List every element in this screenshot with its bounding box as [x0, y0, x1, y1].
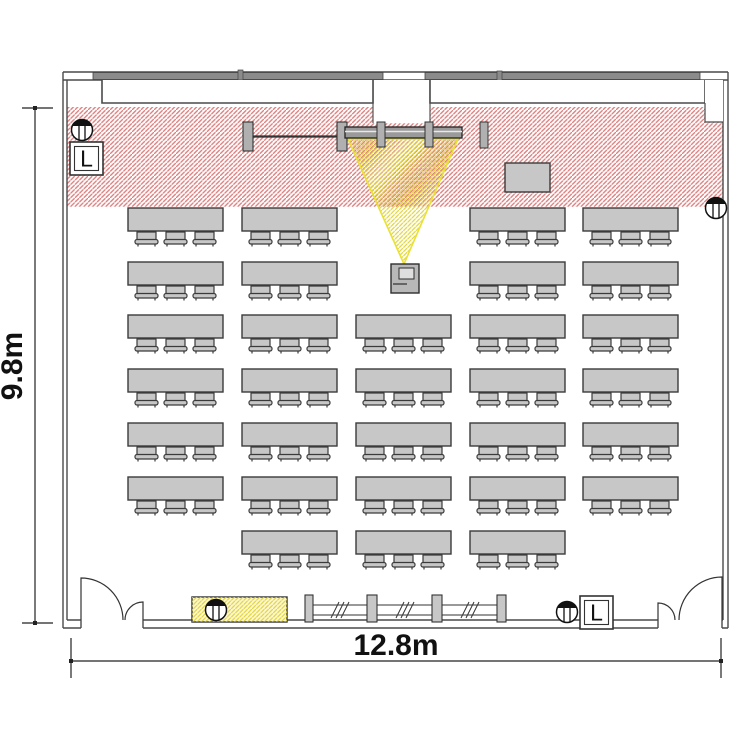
chair — [307, 232, 330, 247]
projector — [391, 264, 419, 293]
chair — [193, 232, 216, 247]
table-group — [128, 315, 223, 354]
chair — [193, 393, 216, 408]
chair — [506, 339, 529, 354]
chair — [278, 339, 301, 354]
table-group — [128, 369, 223, 408]
screen-bar — [345, 127, 462, 138]
switch-label: L — [590, 600, 603, 626]
table — [242, 423, 337, 446]
table — [128, 315, 223, 338]
table-group — [470, 423, 565, 462]
glass-marks — [331, 602, 479, 618]
left-wall — [63, 72, 67, 628]
switch-panel: L — [70, 142, 103, 175]
chair — [535, 555, 558, 570]
chair — [249, 232, 272, 247]
table — [470, 477, 565, 500]
chair — [477, 447, 500, 462]
chair — [506, 286, 529, 301]
chair — [392, 339, 415, 354]
chair — [506, 232, 529, 247]
table-group — [583, 369, 678, 408]
chair — [421, 447, 444, 462]
table-group — [470, 531, 565, 570]
table-group — [242, 477, 337, 516]
table-group — [128, 423, 223, 462]
chair — [477, 555, 500, 570]
table — [242, 531, 337, 554]
chair — [648, 232, 671, 247]
table-group — [356, 369, 451, 408]
table — [470, 423, 565, 446]
door-right — [658, 577, 722, 620]
table-group — [470, 315, 565, 354]
chair — [590, 447, 613, 462]
chair — [535, 501, 558, 516]
chair — [535, 393, 558, 408]
chair — [506, 555, 529, 570]
table-group — [356, 477, 451, 516]
chair — [164, 339, 187, 354]
chair — [249, 447, 272, 462]
table — [128, 477, 223, 500]
chair — [590, 232, 613, 247]
chair — [648, 501, 671, 516]
dimension-width: 12.8m — [69, 629, 723, 678]
chair — [363, 555, 386, 570]
table-group — [583, 262, 678, 301]
right-wall — [723, 72, 728, 628]
table-group — [128, 262, 223, 301]
table-group — [470, 208, 565, 247]
chair — [307, 555, 330, 570]
table — [128, 208, 223, 231]
chair — [506, 393, 529, 408]
chair — [535, 286, 558, 301]
chair — [164, 447, 187, 462]
table — [583, 423, 678, 446]
table-group — [128, 477, 223, 516]
chair — [590, 339, 613, 354]
table — [470, 369, 565, 392]
chair — [193, 501, 216, 516]
chair — [249, 501, 272, 516]
table — [356, 423, 451, 446]
table-group — [242, 315, 337, 354]
table — [470, 208, 565, 231]
switch-label: L — [80, 146, 93, 172]
table — [583, 208, 678, 231]
table — [583, 369, 678, 392]
chair — [535, 232, 558, 247]
table-group — [470, 262, 565, 301]
table — [470, 531, 565, 554]
chair — [648, 286, 671, 301]
chair — [363, 501, 386, 516]
dimension-height: 9.8m — [0, 106, 53, 625]
switch-panel: L — [580, 596, 613, 629]
chair — [363, 393, 386, 408]
table-group — [470, 477, 565, 516]
table — [583, 315, 678, 338]
chair — [535, 339, 558, 354]
table-group — [242, 262, 337, 301]
table — [242, 262, 337, 285]
table-group — [583, 477, 678, 516]
chair — [421, 393, 444, 408]
table-group — [128, 208, 223, 247]
chair — [164, 501, 187, 516]
whiteboard-bar-right — [425, 73, 700, 80]
chair — [278, 447, 301, 462]
chair — [249, 393, 272, 408]
width-dimension-label: 12.8m — [353, 629, 438, 662]
chair — [249, 339, 272, 354]
chair — [307, 286, 330, 301]
chair — [307, 339, 330, 354]
chair — [249, 286, 272, 301]
corner-column — [705, 80, 723, 122]
speaker-icon — [72, 120, 93, 141]
chair — [135, 501, 158, 516]
chair — [590, 393, 613, 408]
chair — [135, 393, 158, 408]
table — [242, 208, 337, 231]
chair — [477, 501, 500, 516]
chair — [392, 555, 415, 570]
chair — [535, 447, 558, 462]
chair — [421, 339, 444, 354]
table — [242, 369, 337, 392]
chair — [278, 501, 301, 516]
chair — [135, 339, 158, 354]
bottom-wall — [63, 620, 728, 628]
chair — [590, 501, 613, 516]
table-group — [583, 208, 678, 247]
table-group — [356, 423, 451, 462]
door-left — [81, 578, 143, 620]
chair — [506, 501, 529, 516]
speaker-icon — [706, 197, 727, 218]
chair — [164, 393, 187, 408]
chair — [477, 393, 500, 408]
table-group — [242, 369, 337, 408]
table — [242, 477, 337, 500]
table-group — [242, 208, 337, 247]
chair — [590, 286, 613, 301]
chair — [619, 501, 642, 516]
windows — [305, 595, 506, 622]
chair — [421, 501, 444, 516]
table — [356, 477, 451, 500]
table-group — [356, 531, 451, 570]
chair — [135, 447, 158, 462]
chair — [648, 393, 671, 408]
chair — [648, 447, 671, 462]
chair — [477, 286, 500, 301]
table-group — [470, 369, 565, 408]
table — [128, 423, 223, 446]
chair — [619, 286, 642, 301]
table-group — [583, 423, 678, 462]
floor-plan-page: L L 9.8m 12.8m — [0, 0, 750, 750]
speaker-icon — [557, 602, 578, 623]
chair — [193, 339, 216, 354]
chair — [278, 232, 301, 247]
chair — [307, 393, 330, 408]
speaker-icon — [206, 600, 227, 621]
table — [356, 531, 451, 554]
table — [470, 262, 565, 285]
chair — [278, 286, 301, 301]
chair — [619, 232, 642, 247]
chair — [278, 555, 301, 570]
chair — [193, 447, 216, 462]
chair — [278, 393, 301, 408]
table — [356, 315, 451, 338]
chair — [164, 286, 187, 301]
chair — [363, 447, 386, 462]
chair — [392, 393, 415, 408]
table — [583, 477, 678, 500]
chair — [477, 232, 500, 247]
table — [583, 262, 678, 285]
chair — [363, 339, 386, 354]
chair — [421, 555, 444, 570]
doors — [81, 577, 722, 620]
rail-bracket-tick — [238, 70, 243, 80]
chair — [619, 339, 642, 354]
table — [128, 369, 223, 392]
chair — [135, 286, 158, 301]
table-group — [242, 423, 337, 462]
table-group — [583, 315, 678, 354]
height-dimension-label: 9.8m — [0, 332, 29, 400]
floor-plan: L L 9.8m 12.8m — [0, 0, 750, 750]
chair — [249, 555, 272, 570]
table — [356, 369, 451, 392]
chair — [164, 232, 187, 247]
chair — [477, 339, 500, 354]
table-group — [356, 315, 451, 354]
table — [242, 315, 337, 338]
table — [470, 315, 565, 338]
table-group — [242, 531, 337, 570]
chair — [193, 286, 216, 301]
chair — [648, 339, 671, 354]
table — [128, 262, 223, 285]
chair — [619, 447, 642, 462]
lectern — [505, 163, 550, 192]
chair — [392, 447, 415, 462]
chair — [135, 232, 158, 247]
chair — [392, 501, 415, 516]
chair — [307, 501, 330, 516]
chair — [619, 393, 642, 408]
chair — [307, 447, 330, 462]
chair — [506, 447, 529, 462]
